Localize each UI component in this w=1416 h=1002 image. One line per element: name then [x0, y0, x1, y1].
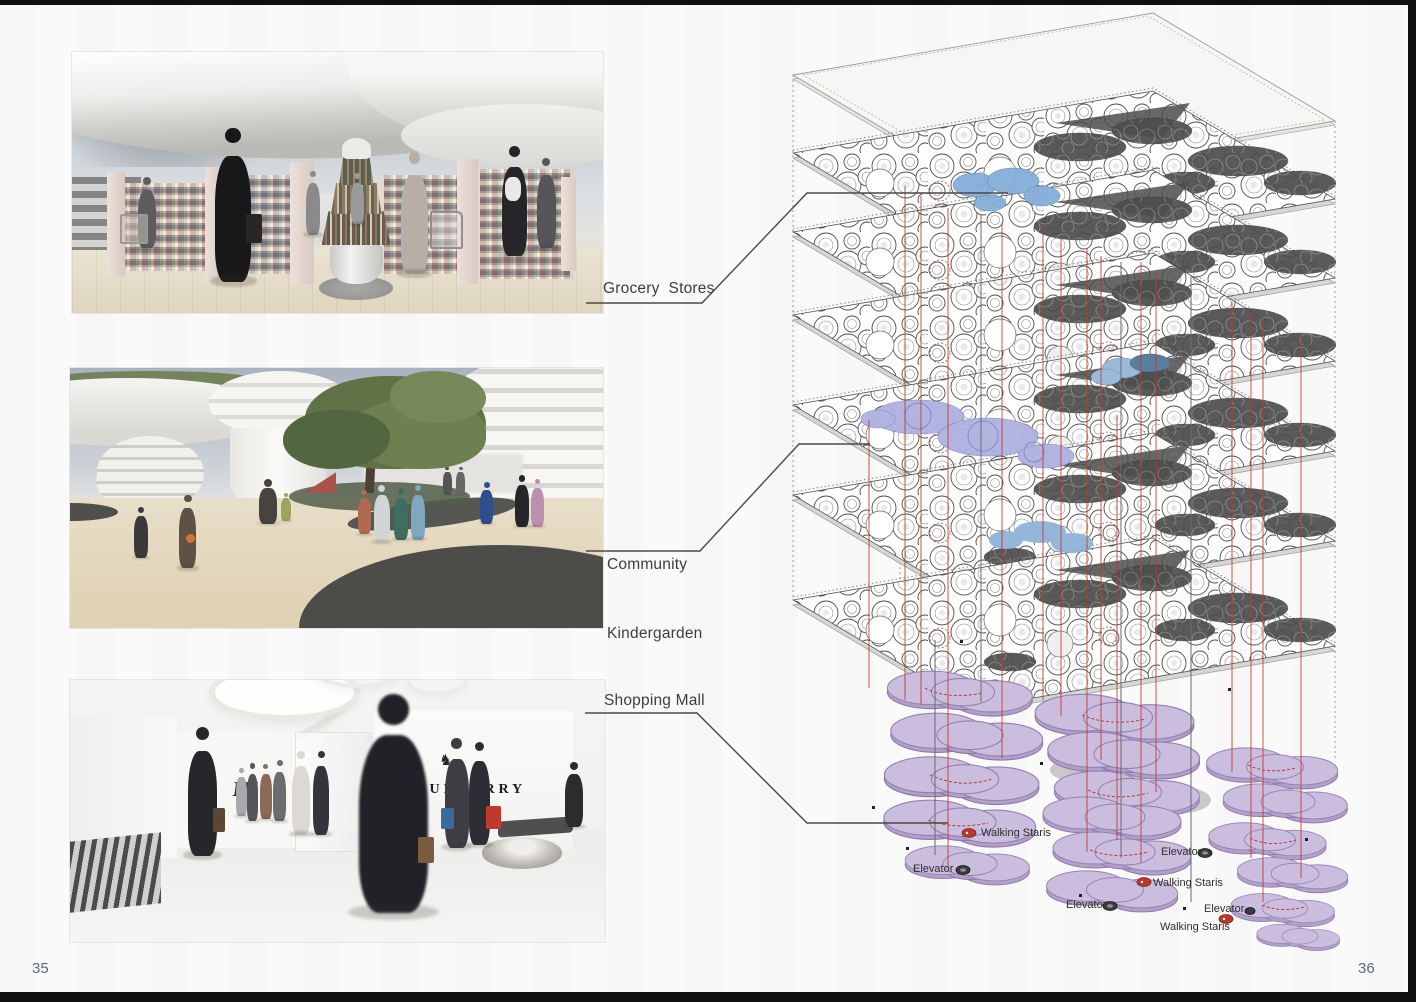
shopping-cart [120, 214, 148, 244]
person-sitting [565, 774, 583, 826]
shopper [537, 175, 556, 248]
annotation-elevator: Elevator [1066, 899, 1106, 911]
shopping-bag-blue [441, 808, 454, 829]
shopping-bag [213, 808, 225, 832]
shopper [306, 183, 321, 235]
annotation-elevator: Elevator [1161, 846, 1201, 858]
floor-plates [793, 88, 1336, 713]
child [134, 516, 148, 558]
person-background [443, 472, 452, 495]
child [411, 495, 425, 539]
display-tier [339, 156, 374, 185]
adult-crouching [259, 488, 277, 524]
tree-crown [390, 371, 486, 423]
annotation-elevator: Elevator [1204, 903, 1244, 915]
highlight-level-5 [989, 521, 1093, 553]
construction-lines [793, 13, 1335, 760]
callout-shopping-mall: Shopping Mall [604, 689, 705, 712]
highlight-kindergarten-level [861, 400, 1074, 468]
annotation-walking-stairs: Walking Staris [1160, 921, 1230, 933]
callout-line-1: Community [607, 553, 702, 576]
shopper-foreground [359, 735, 429, 913]
frame-bar-top [0, 0, 1416, 5]
page-number-right: 36 [1358, 960, 1375, 977]
shopper [292, 766, 310, 834]
shopping-bag-red [486, 806, 501, 830]
highlight-level-3 [1091, 354, 1170, 385]
callout-grocery-stores: Grocery Stores [603, 277, 715, 300]
ceiling-light-ring [407, 680, 467, 694]
escalator [70, 832, 161, 912]
child [515, 485, 529, 527]
circulation-lines [869, 186, 1308, 910]
annotation-walking-stairs: Walking Staris [981, 827, 1051, 839]
child [531, 488, 544, 527]
roof-plate [793, 13, 1335, 187]
shopping-bag [246, 214, 262, 243]
shopper [247, 774, 259, 821]
shopper [351, 183, 364, 225]
backpack [505, 177, 521, 200]
photo-kindergarten [70, 368, 603, 628]
page-number-left: 35 [32, 960, 49, 977]
shopper [260, 774, 272, 819]
shopper [188, 751, 217, 856]
display-tower [330, 243, 383, 285]
frame-bar-bottom [0, 992, 1416, 1002]
child [358, 498, 371, 534]
annotation-walking-stairs: Walking Staris [1153, 877, 1223, 889]
child [480, 490, 493, 524]
portfolio-spread: LV ♞ BURBERRY LONDON [0, 0, 1416, 1002]
column [561, 177, 577, 271]
shopper [445, 759, 469, 848]
frame-bar-right [1408, 0, 1416, 1002]
shopper [273, 772, 286, 822]
person-background [456, 472, 465, 495]
child [281, 498, 292, 521]
shopping-cart [430, 211, 463, 249]
callout-community-kindergarden: Community Kindergarden [607, 507, 702, 691]
callout-line-2: Kindergarden [607, 622, 702, 645]
highlight-grocery-level [953, 168, 1060, 211]
shopper [401, 175, 428, 274]
display-top [342, 138, 372, 159]
ceiling-canopy-right [401, 104, 603, 167]
bowl-planter [482, 837, 562, 868]
annotation-elevator: Elevator [913, 863, 953, 875]
underground-mall-plates [884, 671, 1348, 951]
shopper [236, 777, 247, 816]
photo-shopping-mall: LV ♞ BURBERRY LONDON [70, 680, 605, 942]
child [394, 498, 408, 540]
photo-grocery-store [72, 52, 603, 313]
shopper [313, 766, 329, 834]
shopper [469, 761, 490, 845]
shopping-bag [418, 837, 434, 863]
child [374, 495, 390, 542]
